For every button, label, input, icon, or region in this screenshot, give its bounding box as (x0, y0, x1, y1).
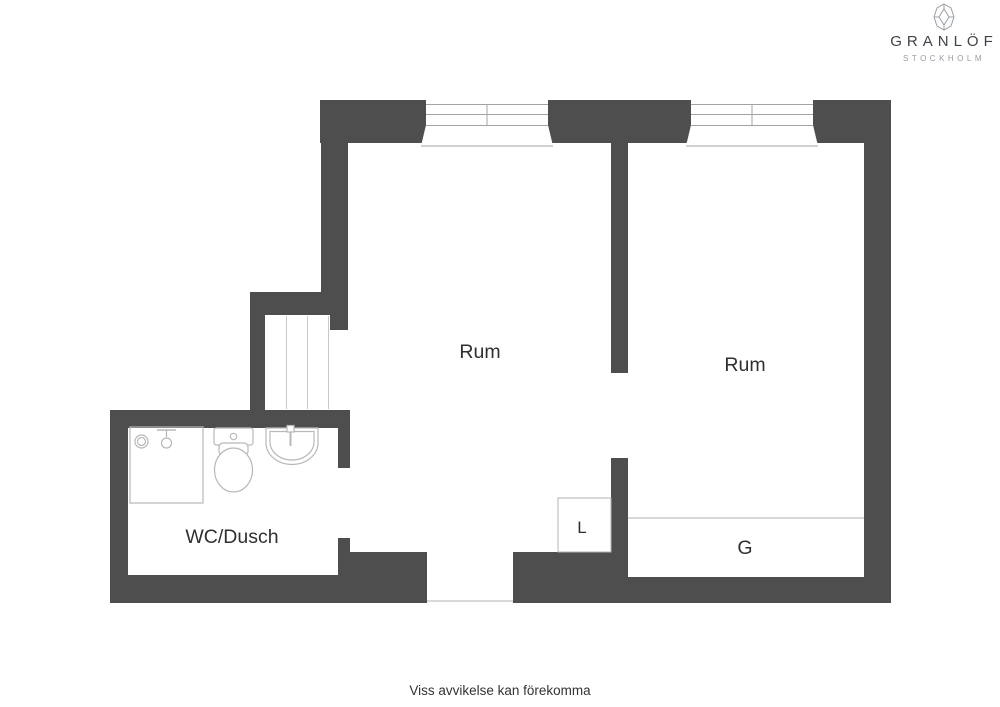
sink-fixture (266, 426, 318, 465)
toilet-fixture (214, 428, 253, 492)
shower-head (157, 430, 176, 448)
wall-bathdoor-stub-upper (338, 428, 350, 468)
window-reveal (686, 125, 818, 146)
room-right-label: Rum (724, 354, 765, 376)
wall-bath-left (110, 410, 128, 603)
wall-bottom-mid (513, 552, 628, 603)
granlof-logo-icon (931, 3, 957, 31)
wall-divider-lower (611, 458, 628, 603)
shower-drain-inner (138, 438, 146, 446)
bathroom-fixtures (130, 426, 318, 504)
window-reveal (421, 125, 553, 146)
wall-niche-left (250, 292, 265, 428)
entry-niche-panels (287, 316, 329, 409)
floorplan-page: Rum Rum WC/Dusch L G GRANLÖF STOCKHOLM V… (0, 0, 1000, 707)
brand-name: GRANLÖF (869, 33, 1000, 50)
wall-bottom-right (628, 577, 891, 603)
wall-left-upper (321, 100, 348, 292)
closet-g-label: G (737, 537, 752, 559)
wall-hall-block (350, 552, 427, 603)
room-left-label: Rum (459, 341, 500, 363)
wall-right (864, 100, 891, 603)
disclaimer-text: Viss avvikelse kan förekomma (0, 683, 1000, 698)
bathroom-label: WC/Dusch (185, 526, 278, 548)
window-left (421, 100, 553, 146)
floorplan-drawing: Rum Rum WC/Dusch L G (0, 0, 1000, 707)
closet-l-label: L (577, 518, 586, 537)
wall-divider-upper (611, 143, 628, 373)
window-right (686, 100, 818, 146)
wall-niche-stub (330, 315, 348, 330)
wall-bathdoor-stub-lower (338, 538, 350, 578)
wall-bath-top (110, 410, 350, 428)
brand-city: STOCKHOLM (869, 54, 1000, 63)
granlof-logo: GRANLÖF STOCKHOLM (869, 3, 1000, 63)
